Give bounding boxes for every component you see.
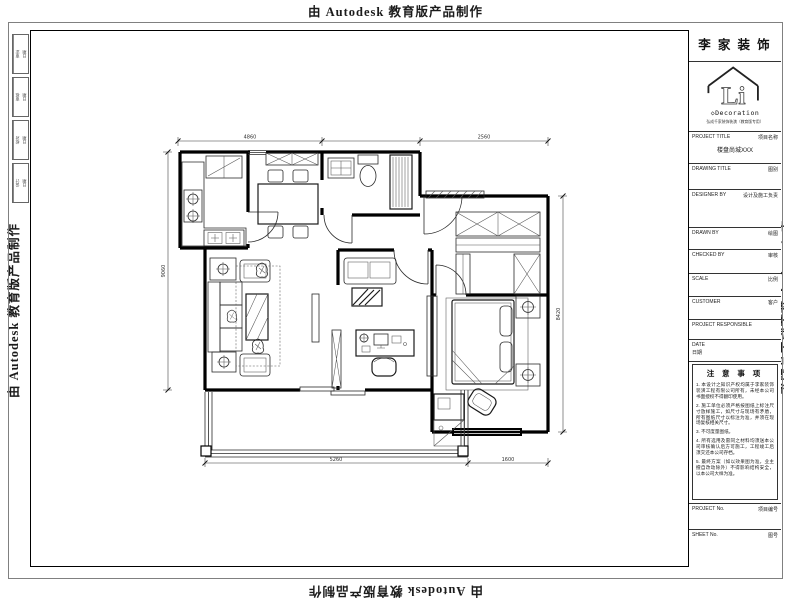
hatched-table [352, 288, 382, 306]
dimension-label: 8420 [556, 308, 562, 321]
corner-post [458, 446, 468, 456]
washbasin-icon [328, 158, 354, 178]
dimension-label: 5260 [330, 457, 343, 463]
logo-subtitle: ◇Decoration [689, 109, 781, 117]
note-item: 2. 施工单位必须严格按图纸上标注尺寸放样施工，如尺寸与现场有矛盾，所有图纸尺寸… [696, 403, 774, 427]
nightstand-lamp-icon [516, 364, 540, 386]
floor-plan: 4860 2560 5260 1600 8420 9060 [0, 0, 791, 600]
sink-icon [204, 230, 244, 246]
field-label-en: SHEET No. [692, 532, 718, 539]
field-label-en: SCALE [692, 276, 708, 283]
field-label-cn: 图别 [768, 166, 778, 173]
field-checked-by: CHECKED BY 审核 [689, 250, 781, 274]
wardrobe [456, 212, 540, 294]
corner-post [201, 446, 211, 456]
tv-cabinet [312, 294, 319, 342]
bedroom-chair [466, 387, 499, 418]
dimension-label: 9060 [161, 265, 167, 278]
company-logo: Li ◇Decoration 弘成千家装饰装潢（教育版专用） [689, 62, 781, 132]
field-label-cn: 比例 [768, 276, 778, 283]
bedroom-window [452, 428, 522, 436]
plant-icon [252, 339, 263, 353]
laundry-cabinet [434, 394, 464, 446]
field-label-cn: 审核 [768, 252, 778, 259]
kitchen [182, 156, 246, 246]
field-label-en: DATE [692, 342, 705, 348]
toilet-icon [358, 155, 378, 187]
field-sheet-no: SHEET No. 图号 [689, 530, 781, 567]
dining-room [258, 153, 318, 238]
dimension-label: 4860 [244, 135, 257, 141]
living-rug [236, 266, 280, 366]
window-dining [248, 151, 266, 155]
desk-chair [372, 358, 396, 376]
notes-title: 注 意 事 项 [696, 368, 774, 379]
study-sofa [344, 258, 396, 284]
radiator-icon [390, 155, 412, 209]
note-item: 1. 本设计之知识产权均属于李家装饰装潢工程有限公司所有，未经本公司书面授权不得… [696, 382, 774, 400]
field-label-cn: 绘图 [768, 230, 778, 237]
partition-screen [332, 330, 341, 388]
sofa [208, 282, 242, 352]
field-label-cn: 项目编号 [758, 506, 778, 513]
field-label-en: PROJECT RESPONSIBLE [692, 322, 752, 328]
field-label-en: DRAWING TITLE [692, 166, 731, 173]
plant-icon [227, 310, 237, 322]
field-label-cn: 项目名称 [758, 134, 778, 141]
note-item: 4. 所有选用及雷同之材料均须送本公司审核确认后方可施工，工程竣工后须交还本公司… [696, 438, 774, 456]
desk [356, 330, 414, 356]
stove-icon [184, 190, 202, 223]
bed [452, 300, 514, 384]
bedroom [427, 296, 540, 436]
field-label-cn: 日期 [692, 349, 702, 356]
field-drawn-by: DRAWN BY 绘图 [689, 228, 781, 250]
field-label-en: PROJECT TITLE [692, 134, 730, 141]
coffee-table [246, 294, 268, 340]
balcony [201, 387, 468, 457]
field-project-no: PROJECT No. 项目编号 [689, 504, 781, 530]
field-date: DATE 日期 [689, 340, 781, 362]
armchair [240, 260, 270, 282]
logo-text: Li [721, 81, 745, 106]
armchair [240, 354, 270, 376]
field-label-en: DRAWN BY [692, 230, 719, 237]
company-tagline: 弘成千家装饰装潢（教育版专用） [691, 119, 778, 125]
field-project-title: PROJECT TITLE 项目名称 楼盘尚城XXX [689, 132, 781, 164]
note-item: 5. 最终方案（如以效果图为准，业主擅自改动除外）不得影响结构安全，以本公司大样… [696, 459, 774, 477]
field-label-en: PROJECT No. [692, 506, 724, 513]
living-room [208, 258, 341, 388]
bathroom [328, 155, 412, 209]
field-project-responsible: PROJECT RESPONSIBLE [689, 320, 781, 340]
side-table-icon [210, 258, 236, 280]
logo-house-icon: Li [700, 62, 770, 106]
dimension-label: 1600 [502, 457, 515, 463]
field-customer: CUSTOMER 客户 [689, 297, 781, 320]
balcony-windows [205, 390, 468, 457]
study-room [344, 258, 414, 376]
note-item: 3. 不可度量图纸。 [696, 429, 774, 435]
field-label-cn: 设计及施工负责 [743, 192, 778, 199]
nightstand-lamp-icon [516, 296, 540, 318]
title-block: 李 家 装 饰 Li ◇Decoration 弘成千家装饰装潢（教育版专用） P… [688, 30, 781, 567]
field-label-en: DESIGNER BY [692, 192, 726, 199]
dimension-label: 2560 [478, 135, 491, 141]
field-label-en: CUSTOMER [692, 299, 721, 306]
notes-section: 注 意 事 项 1. 本设计之知识产权均属于李家装饰装潢工程有限公司所有，未经本… [689, 362, 781, 504]
field-label-cn: 图号 [768, 532, 778, 539]
dining-table [258, 184, 318, 224]
field-label-en: CHECKED BY [692, 252, 725, 259]
project-title-value: 楼盘尚城XXX [689, 145, 781, 154]
cad-floorplan-sheet: { "watermark": { "text": "由 Autodesk 教育版… [0, 0, 791, 600]
field-label-cn: 客户 [768, 299, 778, 306]
field-designer-by: DESIGNER BY 设计及施工负责 [689, 190, 781, 228]
side-table-icon [212, 352, 236, 372]
notes-box: 注 意 事 项 1. 本设计之知识产权均属于李家装饰装潢工程有限公司所有，未经本… [692, 364, 778, 500]
field-scale: SCALE 比例 [689, 274, 781, 297]
company-name: 李 家 装 饰 [689, 30, 781, 62]
fridge-icon [206, 156, 242, 178]
dining-cabinet [266, 153, 318, 165]
field-drawing-title: DRAWING TITLE 图别 [689, 164, 781, 190]
